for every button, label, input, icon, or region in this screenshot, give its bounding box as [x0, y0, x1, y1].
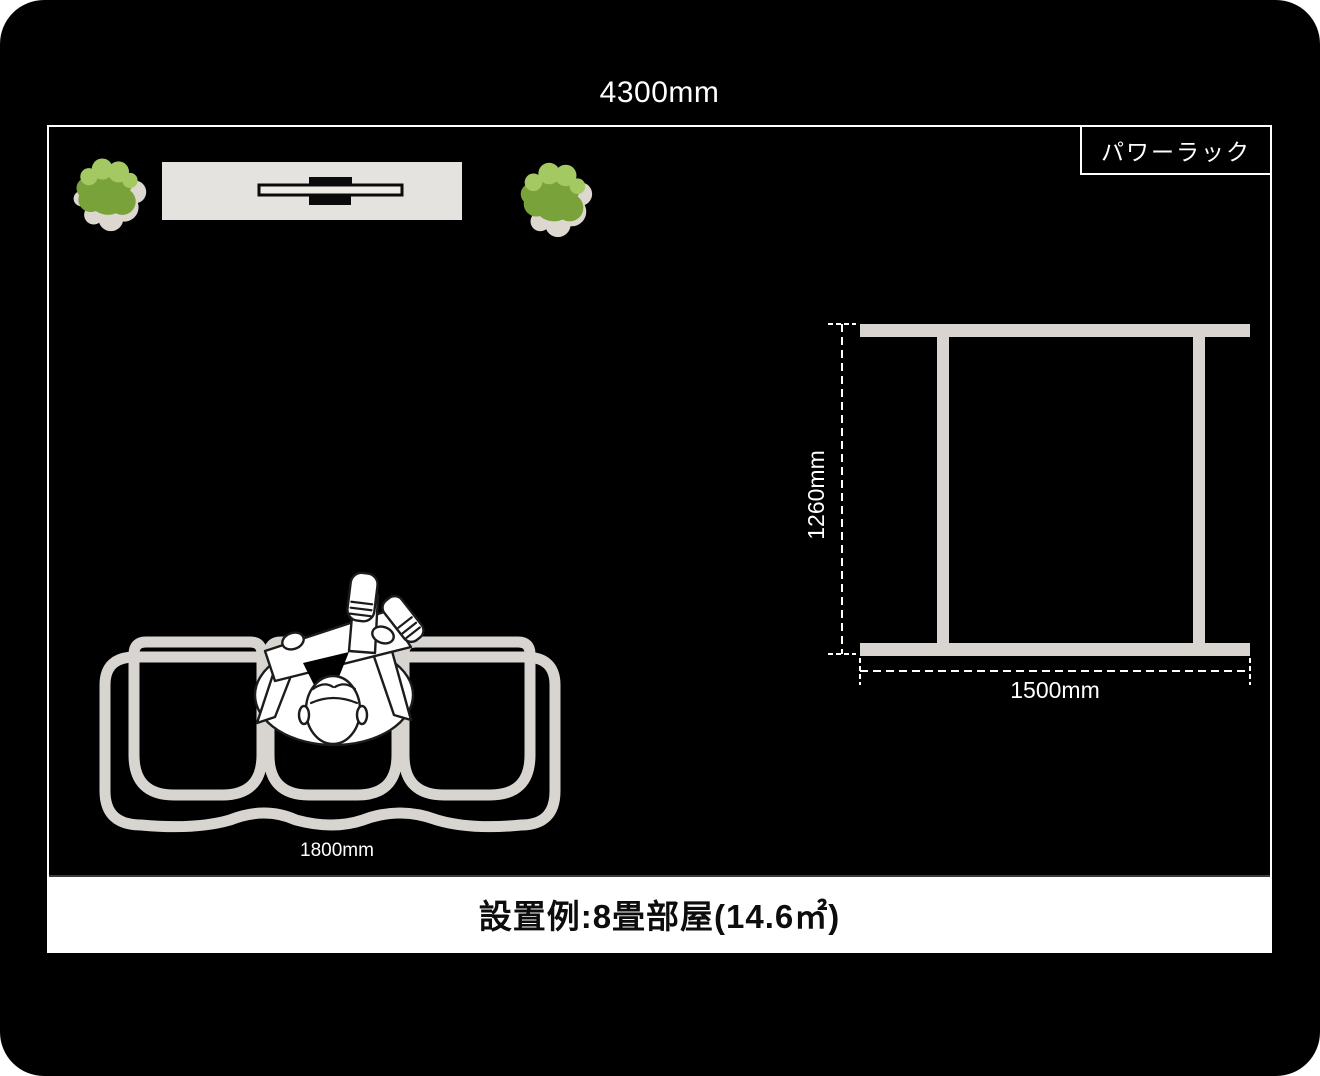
room-outline: パワーラック 1260mm 1500mm: [47, 125, 1272, 953]
sofa-seat: [134, 642, 262, 795]
plant-icon: [510, 152, 598, 240]
rack-width-label: 1500mm: [960, 676, 1150, 704]
floor-plan-canvas: 4300mm: [0, 0, 1320, 1076]
sofa-seat: [404, 642, 530, 795]
sofa-icon: [97, 557, 567, 847]
rack-dimension-lines: [822, 307, 1267, 707]
caption-bar: 設置例:8畳部屋(14.6㎡): [49, 875, 1270, 951]
tv-stand: [162, 162, 462, 220]
rack-label: パワーラック: [1101, 133, 1251, 167]
tv-icon: [162, 162, 462, 220]
rack-label-box: パワーラック: [1080, 125, 1272, 175]
plant-foliage: [521, 163, 586, 222]
rack-depth-label: 1260mm: [802, 434, 830, 556]
sofa-width-label: 1800mm: [254, 839, 420, 863]
plant-foliage: [76, 159, 137, 215]
plant-icon: [65, 148, 151, 234]
room-width-label: 4300mm: [47, 74, 1272, 112]
caption-text: 設置例:8畳部屋(14.6㎡): [479, 890, 841, 938]
